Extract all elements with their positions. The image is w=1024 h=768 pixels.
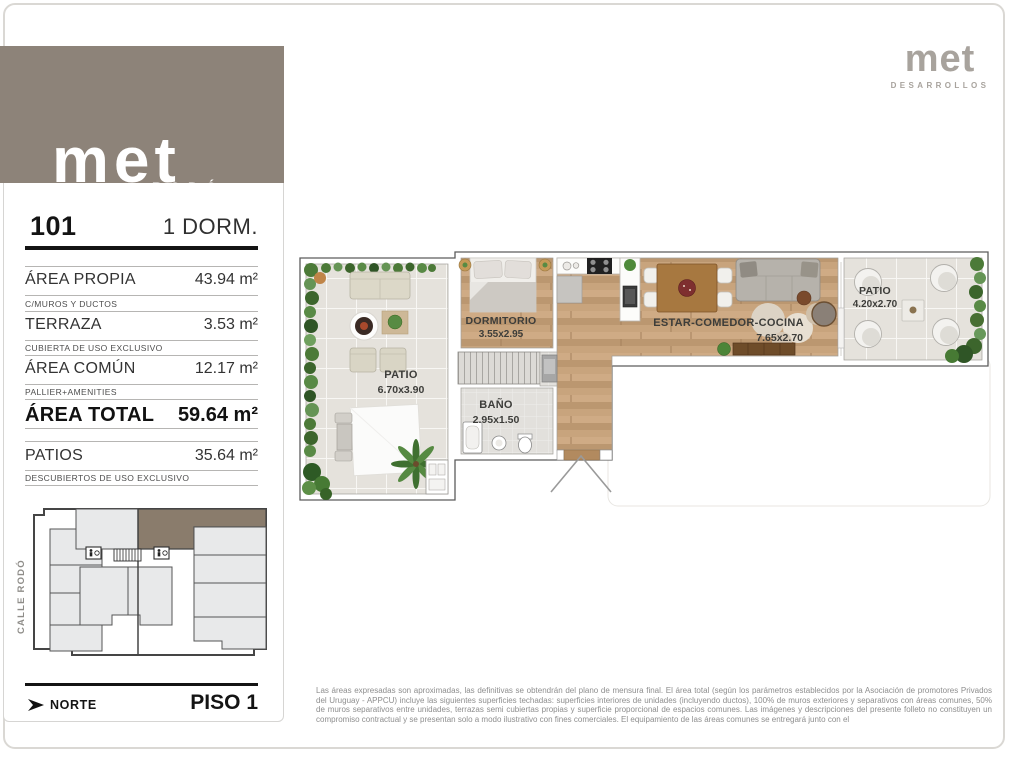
area-note: C/MUROS Y DUCTOS bbox=[25, 299, 117, 309]
area-label: ÁREA COMÚN bbox=[25, 360, 136, 378]
area-value: 12.17 m² bbox=[120, 360, 258, 378]
elevator-icon bbox=[154, 547, 169, 559]
toilet bbox=[518, 434, 532, 453]
area-label: TERRAZA bbox=[25, 316, 102, 334]
area-note: CUBIERTA DE USO EXCLUSIVO bbox=[25, 343, 163, 353]
area-value: 3.53 m² bbox=[120, 316, 258, 334]
stove bbox=[587, 258, 612, 274]
area-note: DESCUBIERTOS DE USO EXCLUSIVO bbox=[25, 473, 189, 483]
patio-table-set bbox=[335, 413, 352, 461]
disclaimer-text: Las áreas expresadas son aproximadas, la… bbox=[316, 686, 992, 725]
patio-door-unit bbox=[426, 460, 448, 494]
kitchen-island bbox=[620, 258, 640, 321]
room-label-dormitorio: DORMITORIO 3.55x2.95 bbox=[446, 314, 556, 342]
fire-pit bbox=[350, 312, 378, 340]
area-note: PALLIER+AMENITIES bbox=[25, 387, 117, 397]
keyplan bbox=[14, 503, 280, 663]
kitchen-cabinet bbox=[557, 276, 582, 303]
area-total-value: 59.64 m² bbox=[120, 404, 258, 427]
header-rule bbox=[25, 246, 258, 250]
room-label-bano: BAÑO 2.95x1.50 bbox=[446, 398, 546, 427]
area-value: 35.64 m² bbox=[120, 447, 258, 465]
unit-type: 1 DORM. bbox=[120, 214, 258, 240]
floorplan: PATIO 6.70x3.90 DORMITORIO 3.55x2.95 BAÑ… bbox=[296, 248, 996, 510]
bed bbox=[470, 258, 536, 312]
area-label: PATIOS bbox=[25, 447, 83, 465]
elevator-icon bbox=[86, 547, 101, 559]
closet bbox=[458, 352, 540, 384]
render-backdrop bbox=[608, 356, 990, 506]
entrance-door bbox=[557, 450, 612, 460]
floor-label: PISO 1 bbox=[158, 691, 258, 715]
side-table bbox=[797, 291, 811, 305]
developer-logo: met bbox=[888, 40, 992, 78]
brochure-page: met RODÓ 101 1 DORM. ÁREA PROPIA 43.94 m… bbox=[0, 0, 1024, 768]
project-logo-block: met RODÓ bbox=[0, 46, 284, 183]
room-label-patio-left: PATIO 6.70x3.90 bbox=[336, 368, 466, 397]
room-label-patio-right: PATIO 4.20x2.70 bbox=[830, 284, 920, 312]
washing-machine bbox=[542, 355, 557, 382]
developer-logo-block: met DESARROLLOS bbox=[888, 40, 992, 90]
developer-name: DESARROLLOS bbox=[888, 81, 992, 90]
plant bbox=[624, 259, 636, 271]
plant-mat bbox=[382, 311, 408, 334]
entrance-arrow bbox=[551, 456, 611, 492]
footer-rule bbox=[25, 683, 258, 686]
outdoor-sofa bbox=[350, 272, 410, 299]
divider bbox=[25, 266, 258, 267]
area-value: 43.94 m² bbox=[120, 271, 258, 289]
orange-plant bbox=[314, 272, 326, 284]
north-label: NORTE bbox=[50, 698, 97, 712]
unit-number: 101 bbox=[30, 211, 77, 242]
north-arrow-icon bbox=[27, 698, 45, 712]
project-name: RODÓ bbox=[100, 179, 224, 195]
room-label-estar: ESTAR-COMEDOR-COCINA 7.65x2.70 bbox=[626, 316, 831, 345]
sink bbox=[492, 436, 506, 450]
stairs-icon bbox=[114, 549, 141, 561]
